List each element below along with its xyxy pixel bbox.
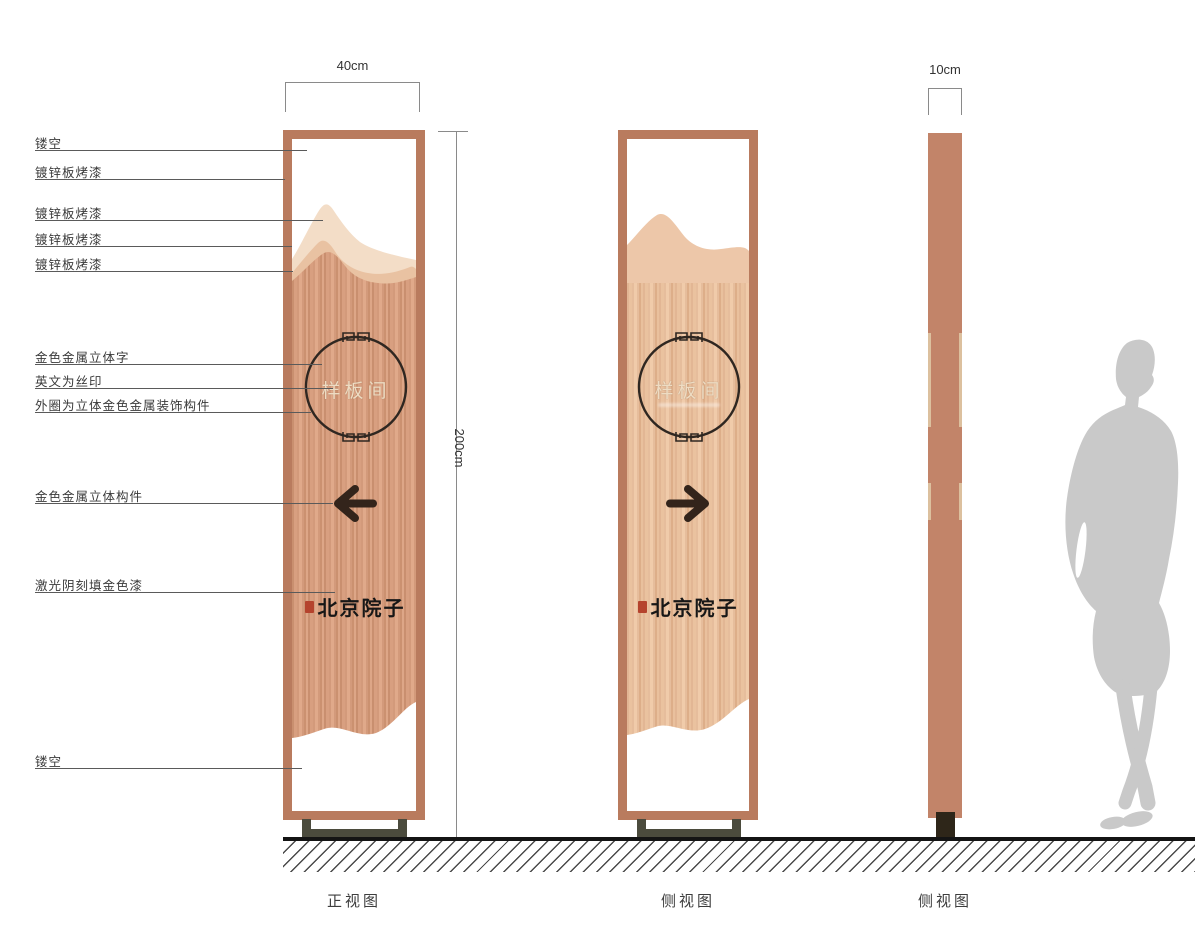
dimension-tick [961, 88, 962, 115]
dimension-tick [928, 88, 929, 115]
annotation-leader-line [35, 271, 293, 272]
annotation-leader-line [35, 150, 307, 151]
annotation-leader-line [35, 503, 333, 504]
mountain-layer [627, 214, 749, 283]
dimension-tick [419, 82, 420, 112]
side-profile-ornament-edge [928, 333, 931, 427]
brand-logo-text: 北京院子 [318, 592, 406, 621]
brand-logo: 北京院子 [295, 592, 415, 621]
room-name-text: 样板间 [633, 376, 745, 403]
annotation-leader-line [35, 592, 335, 593]
english-silkscreen-line [658, 403, 720, 407]
side-profile-column [928, 133, 962, 818]
dimension-line [928, 88, 962, 89]
annotation-leader-line [35, 388, 333, 389]
annotation-leader-line [35, 768, 302, 769]
dimension-line [285, 82, 420, 83]
red-seal-icon [305, 601, 314, 613]
human-silhouette [1038, 335, 1195, 835]
side-panel-artwork [627, 139, 749, 811]
side-profile-ornament-edge [959, 333, 962, 427]
annotation-leader-line [35, 364, 322, 365]
annotation-leader-line [35, 220, 323, 221]
dimension-front-width: 40cm [285, 58, 420, 73]
annotation-leader-line [35, 246, 292, 247]
brand-logo-text: 北京院子 [651, 592, 739, 621]
annotation-leader-line [35, 179, 285, 180]
red-seal-icon [638, 601, 647, 613]
side-profile-arrow-edge [928, 483, 931, 520]
dimension-tick [285, 82, 286, 112]
dimension-height: 200cm [451, 418, 467, 478]
view-label-side-profile: 侧视图 [890, 890, 1000, 911]
dimension-line-vertical [456, 131, 457, 838]
signage-design-sheet: 镂空 镀锌板烤漆 镀锌板烤漆 镀锌板烤漆 镀锌板烤漆 金色金属立体字 英文为丝印… [0, 0, 1195, 927]
dimension-tick [438, 131, 468, 132]
annotation-leader-line [35, 412, 311, 413]
side-profile-arrow-edge [959, 483, 962, 520]
brand-logo: 北京院子 [628, 592, 748, 621]
right-arrow-icon [666, 485, 710, 522]
view-label-front: 正视图 [299, 890, 409, 911]
side-profile-foot [936, 812, 955, 838]
view-label-side: 侧视图 [633, 890, 743, 911]
room-name-text: 样板间 [300, 376, 412, 403]
dimension-side-width: 10cm [928, 62, 962, 77]
left-arrow-icon [333, 485, 377, 522]
front-panel-artwork [292, 139, 416, 811]
ground-hatch [283, 841, 1195, 872]
